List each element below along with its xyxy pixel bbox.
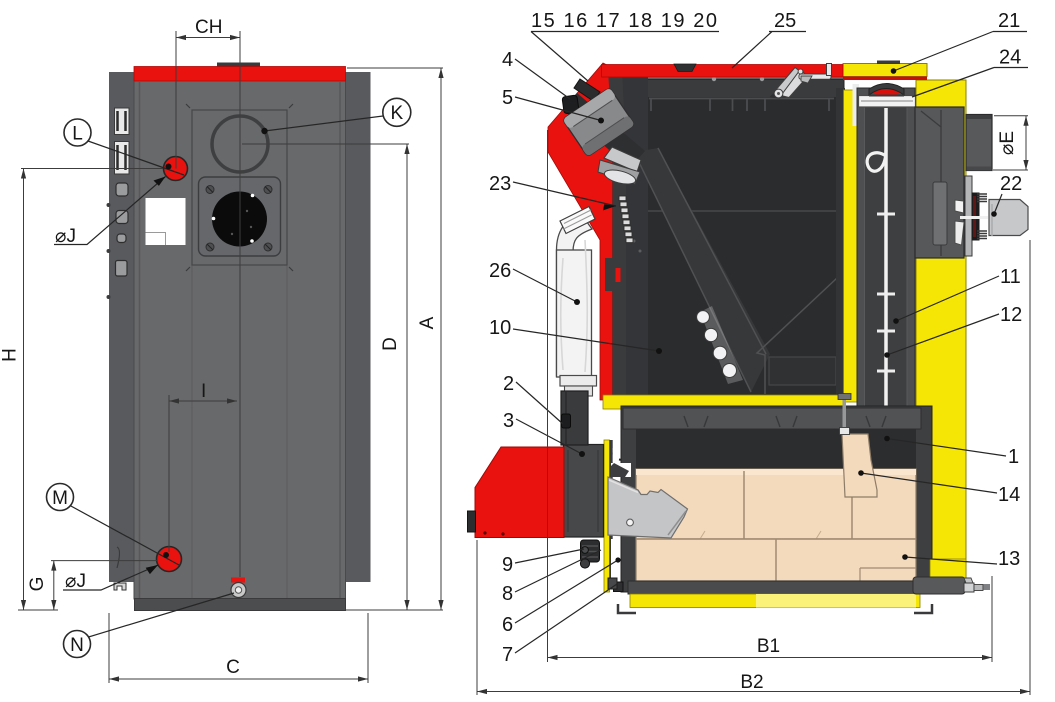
svg-text:CH: CH xyxy=(195,17,222,38)
svg-text:1: 1 xyxy=(1008,446,1019,468)
svg-text:I: I xyxy=(201,381,206,402)
svg-text:N: N xyxy=(70,635,84,656)
svg-text:10: 10 xyxy=(489,317,511,339)
svg-text:22: 22 xyxy=(1000,173,1022,195)
svg-text:B2: B2 xyxy=(740,672,763,693)
svg-text:3: 3 xyxy=(503,410,514,432)
svg-text:C: C xyxy=(226,657,240,678)
svg-text:L: L xyxy=(72,124,83,145)
svg-text:9: 9 xyxy=(502,554,513,576)
svg-text:14: 14 xyxy=(998,484,1020,506)
svg-text:D: D xyxy=(380,337,401,351)
svg-text:B1: B1 xyxy=(757,636,780,657)
svg-text:A: A xyxy=(417,316,438,329)
svg-text:13: 13 xyxy=(998,548,1020,570)
svg-text:12: 12 xyxy=(1000,304,1022,326)
svg-text:6: 6 xyxy=(502,614,513,636)
svg-text:2: 2 xyxy=(503,373,514,395)
svg-text:7: 7 xyxy=(502,644,513,666)
svg-text:K: K xyxy=(390,103,403,124)
svg-text:⌀E: ⌀E xyxy=(997,131,1018,155)
svg-text:25: 25 xyxy=(774,10,796,32)
svg-text:15 16 17 18 19 20: 15 16 17 18 19 20 xyxy=(531,10,717,32)
svg-text:G: G xyxy=(27,577,48,592)
svg-text:5: 5 xyxy=(502,87,513,109)
svg-text:26: 26 xyxy=(489,260,511,282)
svg-text:4: 4 xyxy=(502,49,513,71)
svg-text:H: H xyxy=(0,348,21,362)
svg-text:8: 8 xyxy=(502,583,513,605)
svg-text:24: 24 xyxy=(999,47,1021,69)
svg-text:⌀J: ⌀J xyxy=(55,226,76,247)
svg-text:⌀J: ⌀J xyxy=(65,571,86,592)
svg-text:21: 21 xyxy=(998,10,1020,32)
svg-text:11: 11 xyxy=(1000,266,1021,288)
svg-text:23: 23 xyxy=(489,173,511,195)
svg-text:M: M xyxy=(52,488,68,509)
